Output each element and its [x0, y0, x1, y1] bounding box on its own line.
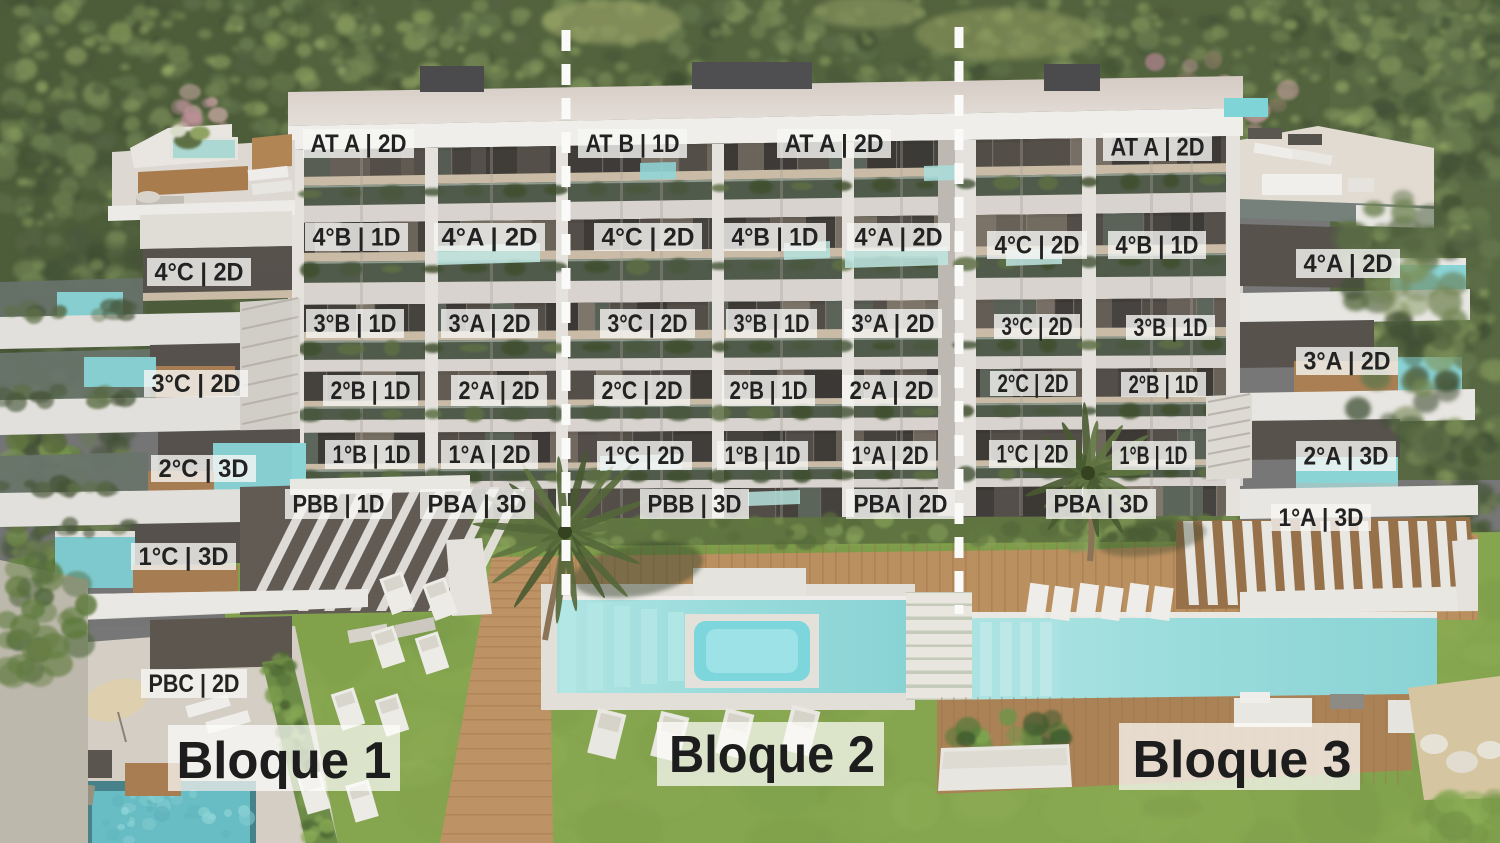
svg-text:AT A | 2D: AT A | 2D [311, 130, 407, 158]
svg-text:PBB | 3D: PBB | 3D [648, 491, 742, 519]
svg-text:3°A | 2D: 3°A | 2D [852, 310, 935, 338]
svg-text:1°B | 1D: 1°B | 1D [725, 442, 801, 470]
svg-text:3°C | 2D: 3°C | 2D [1002, 313, 1073, 341]
svg-text:AT A | 2D: AT A | 2D [1111, 134, 1205, 162]
svg-text:1°C | 2D: 1°C | 2D [997, 441, 1069, 469]
svg-text:2°B | 1D: 2°B | 1D [1129, 371, 1199, 399]
svg-text:3°A | 2D: 3°A | 2D [449, 310, 531, 338]
svg-text:4°C | 2D: 4°C | 2D [602, 224, 695, 252]
svg-text:4°C | 2D: 4°C | 2D [995, 232, 1080, 260]
svg-text:3°B | 1D: 3°B | 1D [734, 310, 810, 338]
svg-text:1°A | 2D: 1°A | 2D [449, 441, 531, 469]
svg-text:4°A | 2D: 4°A | 2D [855, 224, 943, 252]
svg-text:2°C | 2D: 2°C | 2D [602, 377, 683, 405]
svg-text:2°C | 3D: 2°C | 3D [159, 455, 249, 483]
svg-text:1°B | 1D: 1°B | 1D [1120, 442, 1188, 470]
svg-text:1°A | 3D: 1°A | 3D [1279, 504, 1364, 532]
svg-text:4°B | 1D: 4°B | 1D [313, 224, 401, 252]
svg-text:4°A | 2D: 4°A | 2D [1304, 250, 1393, 278]
svg-text:2°A | 3D: 2°A | 3D [1304, 443, 1389, 471]
svg-text:1°B | 1D: 1°B | 1D [333, 441, 411, 469]
svg-text:3°C | 2D: 3°C | 2D [608, 310, 688, 338]
svg-text:2°B | 1D: 2°B | 1D [331, 377, 411, 405]
svg-text:3°B | 1D: 3°B | 1D [314, 310, 397, 338]
svg-text:PBA | 3D: PBA | 3D [1054, 491, 1149, 519]
svg-text:Bloque 2: Bloque 2 [669, 726, 875, 784]
svg-text:4°A | 2D: 4°A | 2D [442, 224, 538, 252]
svg-text:1°A | 2D: 1°A | 2D [852, 442, 929, 470]
svg-text:3°C | 2D: 3°C | 2D [152, 370, 241, 398]
svg-text:PBA | 3D: PBA | 3D [428, 491, 527, 519]
svg-text:2°A | 2D: 2°A | 2D [459, 377, 540, 405]
svg-text:3°A | 2D: 3°A | 2D [1304, 348, 1391, 376]
svg-text:1°C | 2D: 1°C | 2D [605, 442, 685, 470]
svg-text:Bloque 1: Bloque 1 [177, 732, 392, 790]
svg-text:PBA | 2D: PBA | 2D [854, 491, 948, 519]
svg-text:2°B | 1D: 2°B | 1D [730, 377, 808, 405]
svg-text:2°A | 2D: 2°A | 2D [850, 377, 934, 405]
svg-text:PBB | 1D: PBB | 1D [293, 491, 385, 519]
svg-text:Bloque 3: Bloque 3 [1133, 731, 1352, 789]
svg-text:AT A | 2D: AT A | 2D [785, 130, 884, 158]
svg-text:2°C | 2D: 2°C | 2D [998, 370, 1069, 398]
svg-text:4°B | 1D: 4°B | 1D [1116, 232, 1199, 260]
svg-text:PBC | 2D: PBC | 2D [149, 670, 240, 698]
svg-text:AT B | 1D: AT B | 1D [586, 130, 680, 158]
svg-text:4°B | 1D: 4°B | 1D [732, 224, 819, 252]
svg-text:4°C | 2D: 4°C | 2D [155, 259, 244, 287]
svg-text:1°C | 3D: 1°C | 3D [139, 543, 229, 571]
svg-text:3°B | 1D: 3°B | 1D [1134, 314, 1208, 342]
